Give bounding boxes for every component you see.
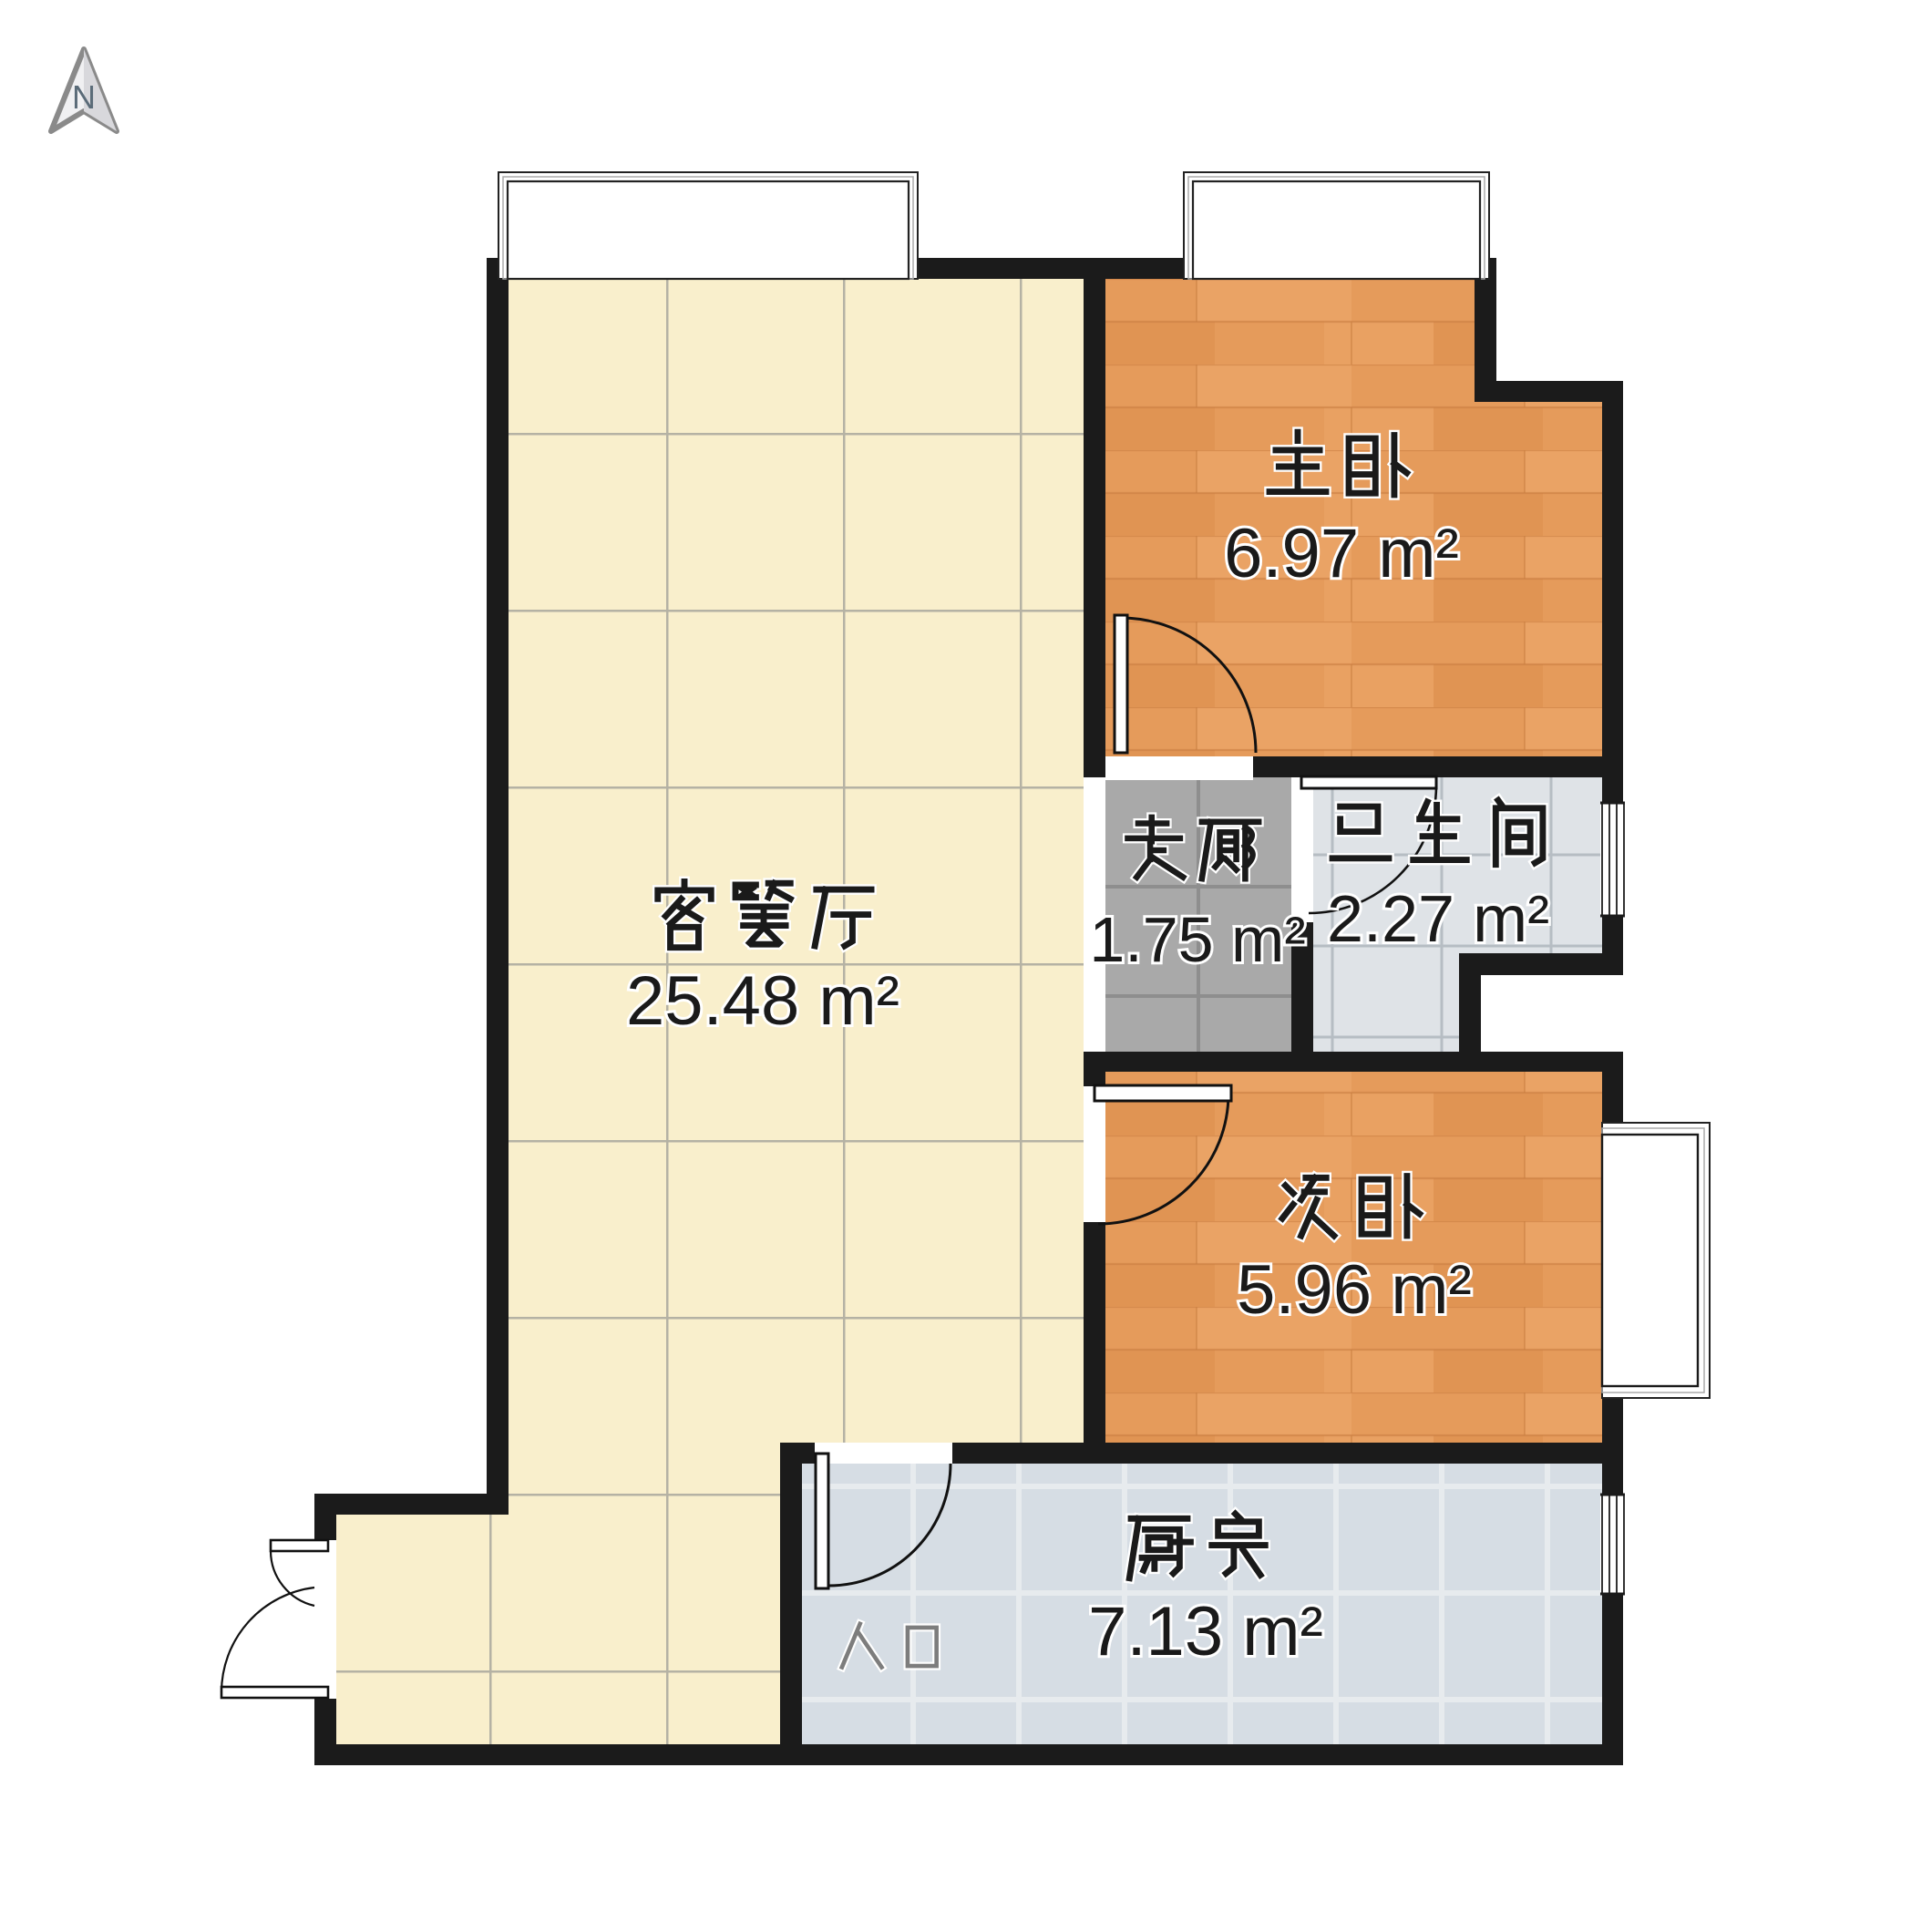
svg-text:2.27 m²: 2.27 m² <box>1327 883 1549 956</box>
svg-text:7.13 m²: 7.13 m² <box>1088 1593 1323 1670</box>
svg-text:N: N <box>72 78 96 116</box>
svg-text:1.75 m²: 1.75 m² <box>1089 904 1305 975</box>
svg-text:25.48 m²: 25.48 m² <box>626 962 899 1040</box>
svg-text:6.97 m²: 6.97 m² <box>1224 515 1459 592</box>
svg-text:5.96 m²: 5.96 m² <box>1237 1251 1472 1329</box>
